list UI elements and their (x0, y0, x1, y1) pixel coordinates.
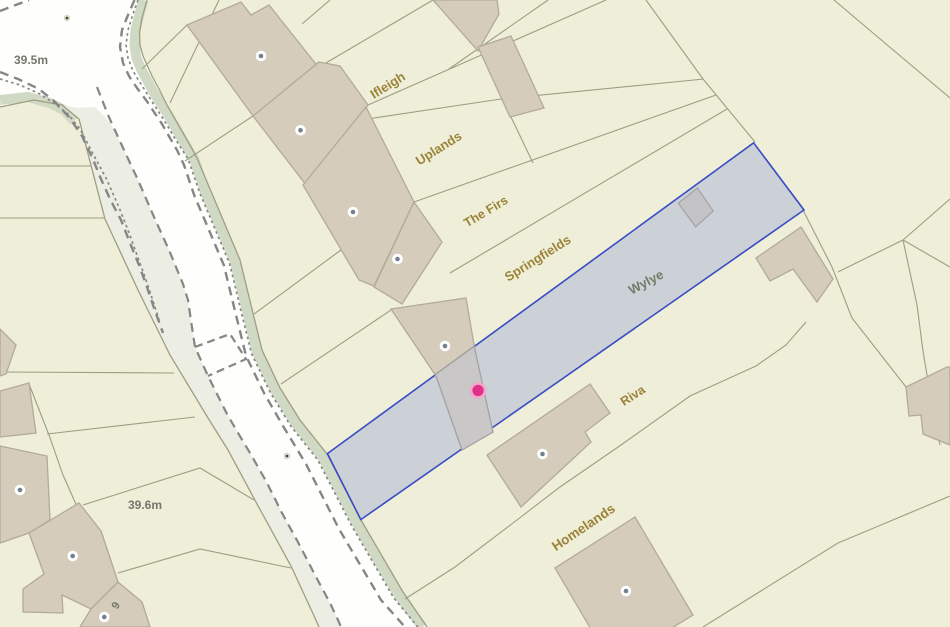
svg-text:39.6m: 39.6m (128, 498, 162, 512)
svg-text:39.5m: 39.5m (14, 53, 48, 67)
